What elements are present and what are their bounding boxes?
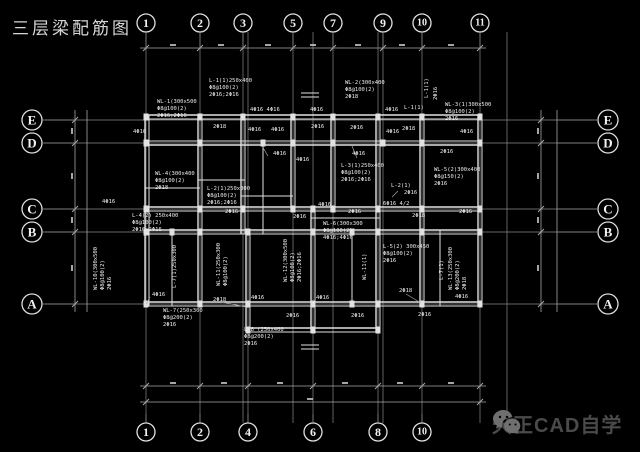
beam-annotation: L-3(1)250x400 — [341, 163, 384, 169]
column-block — [420, 114, 425, 121]
beam-annotation: 2Φ16 — [351, 313, 364, 319]
beam-annotation: 4Φ16 — [248, 127, 261, 133]
beam-annotation: 2Φ18 — [213, 297, 226, 303]
beam-annotation: WL-11(250x300 — [216, 243, 222, 286]
beam-annotation: 2Φ16 — [459, 209, 472, 215]
column-block — [311, 301, 316, 308]
beam-annotation: 4Φ16 — [296, 157, 309, 163]
column-block — [420, 229, 425, 236]
beam-annotation: Φ8@100(2) — [209, 85, 239, 91]
axis-bubble-label: A — [603, 297, 613, 312]
beam-annotation: 4Φ16 — [460, 129, 473, 135]
column-block — [331, 206, 336, 213]
beam-annotation: 4Φ16 — [386, 129, 399, 135]
beam-annotation: WL-2(300x400 — [345, 80, 385, 86]
axis-bubble-label: B — [604, 225, 613, 240]
axis-bubble-label: 2 — [197, 16, 203, 30]
beam-annotation: 4Φ16 — [271, 127, 284, 133]
beam-annotation: Φ8@100(2) — [383, 251, 413, 257]
beam-annotation: 2Φ16 — [350, 125, 363, 131]
beam-annotation: Φ8@100(2) — [223, 256, 229, 286]
beam-annotation: 2Φ16;2Φ16 — [341, 177, 371, 183]
column-block — [144, 206, 149, 213]
column-block — [420, 206, 425, 213]
column-block — [198, 114, 203, 121]
axis-bubble-label: 10 — [417, 18, 427, 29]
beam-annotation: WL-7(250x300 — [163, 308, 203, 314]
beam-annotation: 2Φ16;2Φ16 — [207, 200, 237, 206]
beam-annotation: 4Φ16;4Φ16 — [323, 235, 353, 241]
beam-annotation: 2Φ16 — [445, 116, 458, 122]
column-block — [478, 114, 483, 121]
axis-bubble-label: 7 — [330, 16, 336, 30]
column-block — [246, 301, 251, 308]
beam-annotation: WL-4(300x400 — [155, 171, 195, 177]
beam-annotation: 2Φ16 — [434, 181, 447, 187]
column-block — [170, 229, 175, 236]
column-block — [241, 206, 246, 213]
beam-annotation: L-7(1) — [439, 260, 445, 280]
column-block — [420, 301, 425, 308]
column-block — [144, 114, 149, 121]
column-block — [144, 140, 149, 147]
beam-annotation: Φ8@100(2) — [100, 260, 106, 290]
annotation-leader — [392, 191, 398, 197]
axis-bubble-label: E — [28, 113, 37, 128]
beam-annotation: Φ8@200(2) — [163, 315, 193, 321]
column-block — [198, 140, 203, 147]
column-block — [376, 301, 381, 308]
beam-annotation: L-5(2) 300x450 — [383, 244, 429, 250]
column-block — [198, 229, 203, 236]
column-block — [331, 140, 336, 147]
beam-annotation: 4Φ16 — [133, 129, 146, 135]
column-block — [311, 206, 316, 213]
axis-bubble-label: 9 — [380, 16, 386, 30]
beam-annotation: L-1(1)250x400 — [209, 78, 252, 84]
beam-annotation: WL-12(300x500 — [283, 239, 289, 282]
beam-annotation: 4Φ16 — [316, 295, 329, 301]
axis-bubble-label: A — [27, 297, 37, 312]
beam-annotation: 2Φ16 — [225, 209, 238, 215]
axis-bubble-label: D — [603, 136, 612, 151]
beam-annotation: L-4(2) 250x400 — [132, 213, 178, 219]
beam-annotation: WL-11(1) — [362, 254, 368, 281]
beam-annotation: 2Φ18 — [399, 288, 412, 294]
column-block — [478, 229, 483, 236]
column-block — [478, 301, 483, 308]
column-block — [198, 301, 203, 308]
beam-annotation: Φ8@200(2) — [455, 260, 461, 290]
axis-bubble-label: 11 — [475, 18, 484, 29]
beam-annotation: 2Φ18 — [155, 185, 168, 191]
wechat-icon — [492, 409, 522, 437]
beam-annotation: Φ8@100(2) — [323, 228, 353, 234]
beam-annotation: 4Φ16 — [310, 107, 323, 113]
column-block — [311, 229, 316, 236]
column-block — [291, 206, 296, 213]
beam-annotation: 2Φ16 — [404, 190, 417, 196]
beam-annotation: Φ8@100(2) — [341, 170, 371, 176]
beam-annotation: 2Φ16 2Φ16 — [132, 227, 162, 233]
beam-annotation: 2Φ18 — [402, 126, 415, 132]
beam-annotation: 2Φ16 — [163, 322, 176, 328]
beam-annotation: 2Φ16 — [107, 277, 113, 290]
axis-bubble-label: C — [27, 202, 36, 217]
beam-plan-drawing: WL-1(300x500Φ8@100(2)2Φ16;2Φ16L-1(1)250x… — [0, 0, 640, 452]
beam-annotation: 2Φ16 — [348, 209, 361, 215]
beam-annotation: Φ8@100(2) — [207, 193, 237, 199]
column-block — [478, 206, 483, 213]
beam-annotation: Φ8@100(2) — [345, 87, 375, 93]
axis-bubble-label: B — [28, 225, 37, 240]
beam-annotation: 2Φ16 — [418, 312, 431, 318]
column-block — [291, 114, 296, 121]
beam-annotation: 2Φ16 — [311, 124, 324, 130]
axis-bubble-label: 2 — [197, 425, 203, 439]
beam-annotation: L-2(1)250x300 — [207, 186, 250, 192]
beam-annotation: 2Φ16;2Φ16 — [209, 92, 239, 98]
beam-annotation: 6Φ16 4/2 — [383, 201, 410, 207]
beam-annotation: WL-6(300x300 — [323, 221, 363, 227]
beam-annotation: 4Φ16 4Φ16 — [250, 107, 280, 113]
beam-annotation: 2Φ16 — [433, 87, 439, 100]
axis-bubble-label: 1 — [143, 425, 149, 439]
beam-annotation: WL-1(300x500 — [157, 99, 197, 105]
axis-bubble-label: 3 — [240, 16, 246, 30]
beam-annotation: 2Φ16 — [293, 214, 306, 220]
axis-bubble-label: E — [604, 113, 613, 128]
column-block — [376, 229, 381, 236]
axis-bubble-label: 6 — [310, 425, 316, 439]
beam-annotation: L-2(1) — [391, 183, 411, 189]
axis-bubble-label: C — [603, 202, 612, 217]
beam-annotation: WL-3(1)300x500 — [445, 102, 491, 108]
beam-annotation: 2Φ16;2Φ16 — [297, 252, 303, 282]
beam-annotation: 2Φ18 — [462, 277, 468, 290]
beam-annotation: 4Φ16 — [273, 151, 286, 157]
axis-bubble-label: 10 — [417, 427, 427, 438]
beam-annotation: 2Φ16;2Φ16 — [157, 113, 187, 119]
beam-annotation: 4Φ16 — [385, 107, 398, 113]
beam-annotation: 4Φ16 — [352, 151, 365, 157]
beam-annotation: Φ8@100(2) — [157, 106, 187, 112]
beam-annotation: 2Φ16 — [244, 341, 257, 347]
beam-annotation: 2Φ16 — [286, 313, 299, 319]
beam-annotation: WL-13(250x300 — [448, 247, 454, 290]
beam-annotation: 2Φ16 — [383, 258, 396, 264]
beam-annotation: Φ8@100(2) — [155, 178, 185, 184]
column-block — [376, 114, 381, 121]
watermark: 天正CAD自学 — [492, 409, 622, 438]
column-block — [376, 206, 381, 213]
beam-annotation: Φ8@100(2) — [290, 252, 296, 282]
axis-bubble-label: D — [27, 136, 36, 151]
beam-annotation: 4Φ16 — [102, 199, 115, 205]
column-block — [246, 229, 251, 236]
beam-annotation: L-8 (250x400 — [244, 327, 284, 333]
beam-annotation: 2Φ18 — [213, 124, 226, 130]
beam-annotation: Φ8@200(2) — [244, 334, 274, 340]
beam-annotation: L-7(1)250x300 — [172, 245, 178, 288]
axis-bubble-label: 4 — [245, 425, 251, 439]
column-block — [376, 327, 381, 334]
beam-annotation: L-1(1) — [404, 105, 424, 111]
column-block — [261, 140, 266, 147]
beam-annotation: 4Φ16 — [455, 294, 468, 300]
beam-annotation: Φ8@100(2) — [445, 109, 475, 115]
axis-bubble-label: 5 — [290, 16, 296, 30]
beam-annotation: 2Φ18 — [412, 213, 425, 219]
beam-annotation: 2Φ18 — [345, 94, 358, 100]
beam-annotation: WL-10(300x500 — [93, 247, 99, 290]
column-block — [478, 140, 483, 147]
column-block — [331, 114, 336, 121]
beam-annotation: 4Φ16 — [251, 295, 264, 301]
column-block — [241, 114, 246, 121]
beam-annotation: 4Φ16 — [152, 292, 165, 298]
beam-annotation: L-1(1) — [424, 78, 430, 98]
axis-bubble-label: 8 — [375, 425, 381, 439]
column-block — [420, 140, 425, 147]
column-block — [198, 206, 203, 213]
cad-viewport[interactable]: 三层梁配筋图 WL-1(300x500Φ8@100(2)2Φ16;2Φ16L-1… — [0, 0, 640, 452]
beam-annotation: Φ8@100(2) — [132, 220, 162, 226]
axis-bubble-label: 1 — [143, 16, 149, 30]
column-block — [381, 140, 386, 147]
column-block — [291, 140, 296, 147]
beam-annotation: 2Φ16 — [440, 149, 453, 155]
column-block — [350, 301, 355, 308]
beam-annotation: Φ8@150(2) — [434, 174, 464, 180]
beam-annotation: 4Φ16 — [318, 202, 331, 208]
beam-annotation: WL-5(2)300x400 — [434, 167, 480, 173]
column-block — [311, 327, 316, 334]
